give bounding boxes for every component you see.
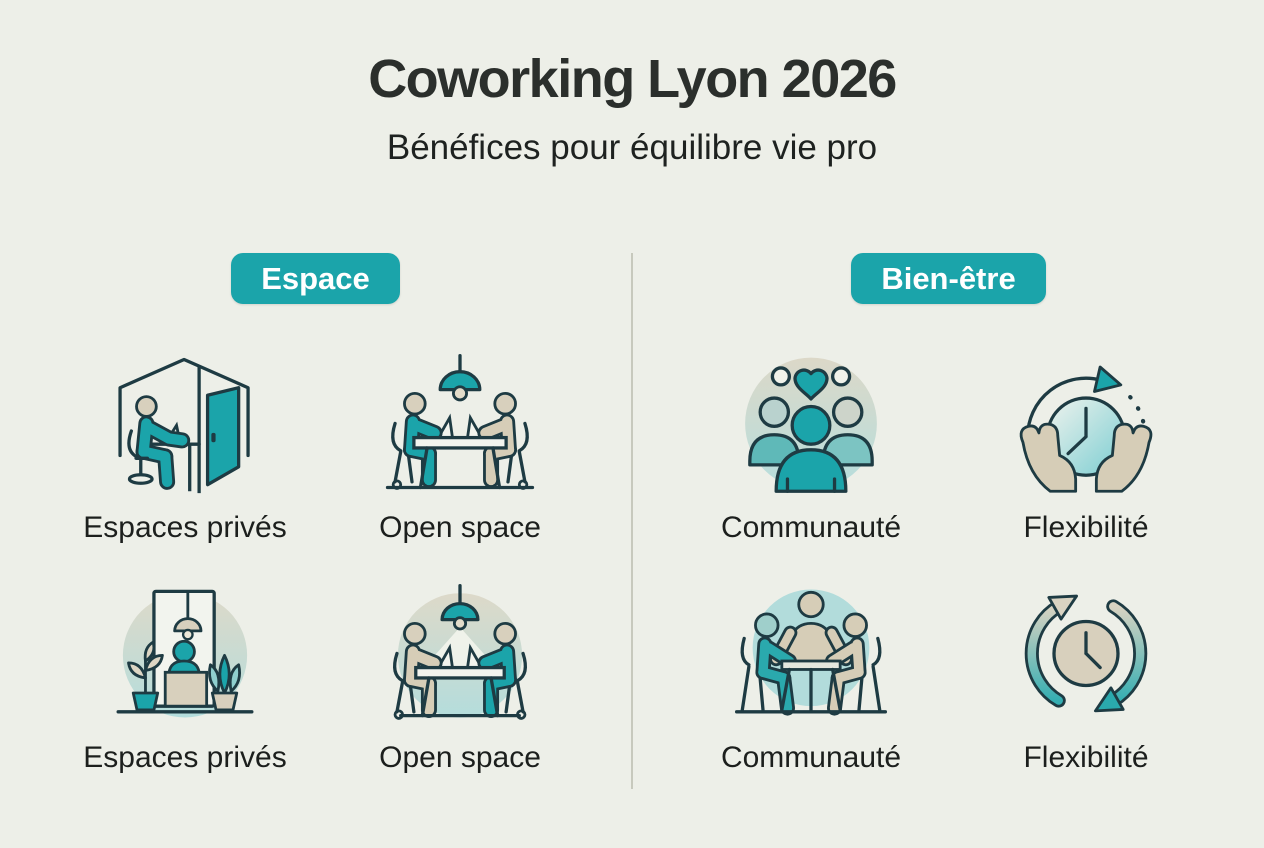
reception-booth-icon xyxy=(105,578,265,728)
tile-espaces-prives-booth: Espaces privés xyxy=(48,348,323,546)
tile-label: Flexibilité xyxy=(1023,740,1148,776)
tile-label: Open space xyxy=(379,510,541,546)
community-table-icon xyxy=(731,578,891,728)
tile-label: Communauté xyxy=(721,510,901,546)
tile-flexibilite-bottom: Flexibilité xyxy=(949,578,1224,776)
tile-flexibilite-top: Flexibilité xyxy=(949,348,1224,546)
icon-box xyxy=(726,578,896,728)
private-booth-icon xyxy=(105,348,265,498)
header: Coworking Lyon 2026 Bénéfices pour équil… xyxy=(0,0,1264,169)
open-space-lamp-icon xyxy=(380,578,540,728)
bien-etre-badge: Bien-être xyxy=(851,253,1045,304)
espace-tiles: Espaces privés xyxy=(48,348,598,776)
bien-etre-tiles: Communauté xyxy=(674,348,1224,776)
tile-communaute-top: Communauté xyxy=(674,348,949,546)
tile-communaute-bottom: Communauté xyxy=(674,578,949,776)
tile-label: Flexibilité xyxy=(1023,510,1148,546)
tile-label: Espaces privés xyxy=(83,510,286,546)
hands-clock-icon xyxy=(1006,348,1166,498)
tile-label: Communauté xyxy=(721,740,901,776)
community-people-icon xyxy=(731,348,891,498)
clock-arrows-icon xyxy=(1006,578,1166,728)
tile-espaces-prives-reception: Espaces privés xyxy=(48,578,323,776)
icon-box xyxy=(100,348,270,498)
tile-label: Open space xyxy=(379,740,541,776)
section-bien-etre: Bien-être xyxy=(633,253,1264,789)
icon-box xyxy=(726,348,896,498)
icon-box xyxy=(375,348,545,498)
tile-open-space-top: Open space xyxy=(323,348,598,546)
section-espace: Espace xyxy=(0,253,631,789)
page-title: Coworking Lyon 2026 xyxy=(0,50,1264,109)
tile-open-space-bottom: Open space xyxy=(323,578,598,776)
tile-label: Espaces privés xyxy=(83,740,286,776)
infographic-page: Coworking Lyon 2026 Bénéfices pour équil… xyxy=(0,0,1264,848)
page-subtitle: Bénéfices pour équilibre vie pro xyxy=(0,127,1264,169)
icon-box xyxy=(1001,578,1171,728)
espace-badge: Espace xyxy=(231,253,400,304)
content-area: Espace xyxy=(0,253,1264,789)
icon-box xyxy=(100,578,270,728)
open-space-desks-icon xyxy=(380,348,540,498)
icon-box xyxy=(1001,348,1171,498)
icon-box xyxy=(375,578,545,728)
